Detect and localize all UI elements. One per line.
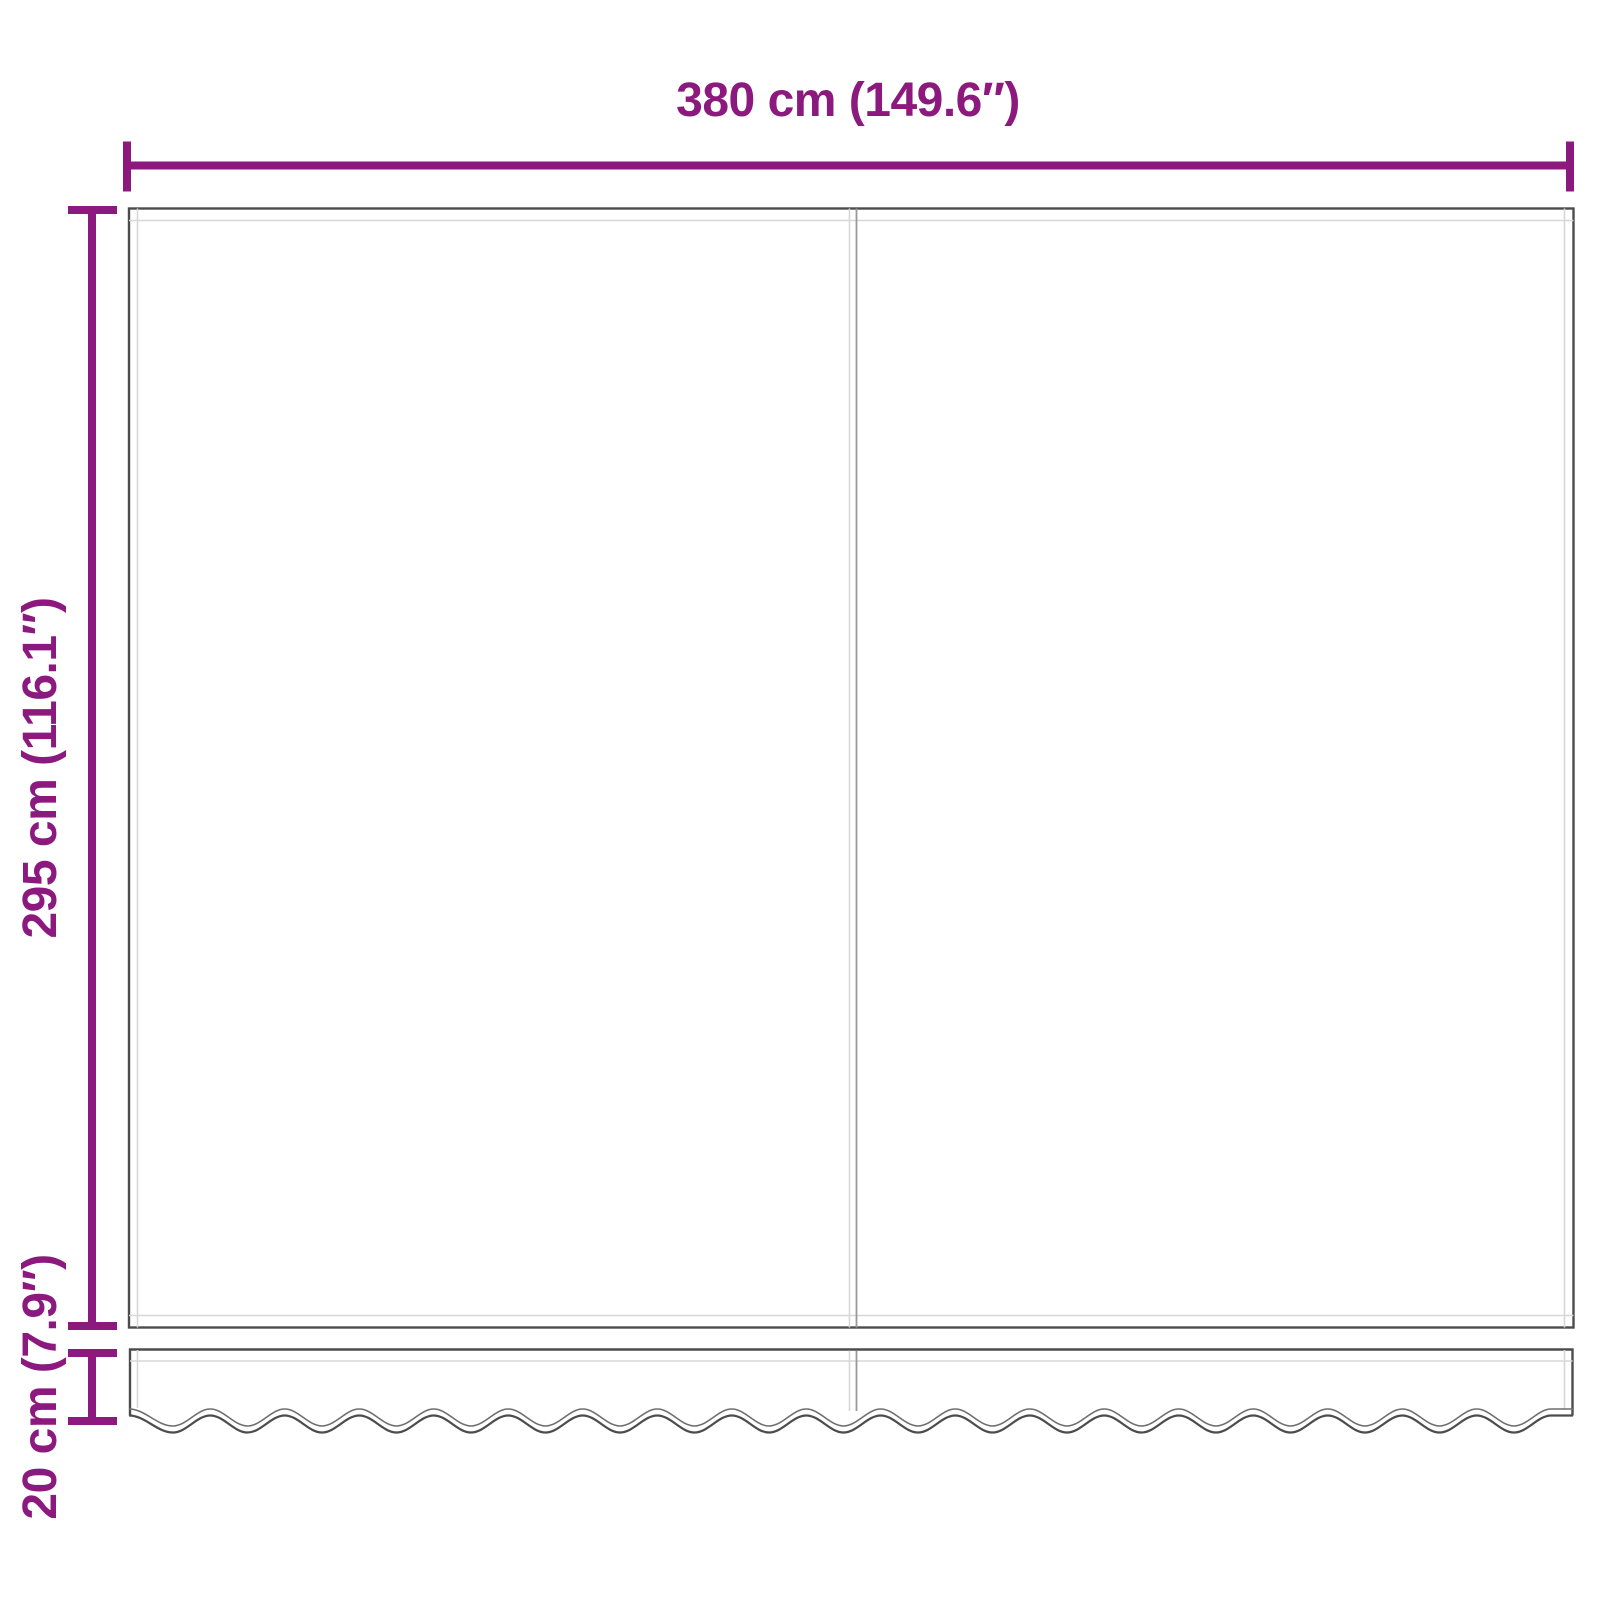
width-dimension-label: 380 cm (149.6″)	[676, 77, 1020, 125]
valance-height-dimension-tick-top	[68, 1349, 117, 1357]
height-dimension-tick-top	[68, 206, 117, 214]
valance-height-dimension-tick-bottom	[68, 1417, 117, 1425]
product-dimension-diagram: 380 cm (149.6″) 295 cm (116.1″) 20 cm (7…	[0, 0, 1600, 1600]
height-dimension-tick-bottom	[68, 1322, 117, 1330]
valance-height-dimension-line	[88, 1349, 96, 1425]
height-dimension-line	[88, 206, 96, 1330]
awning-fabric-panel	[129, 209, 1574, 1328]
valance-height-dimension-label: 20 cm (7.9″)	[17, 1254, 65, 1519]
valance-panel	[129, 1349, 1574, 1433]
width-dimension-line	[127, 162, 1570, 170]
valance-scallop-stitch-line	[129, 1409, 1573, 1426]
diagram-canvas	[0, 0, 1600, 1600]
height-dimension-label: 295 cm (116.1″)	[17, 597, 65, 938]
fabric-panel-outline	[129, 209, 1574, 1328]
width-dimension-tick-left	[123, 142, 131, 192]
width-dimension-tick-right	[1566, 142, 1574, 192]
